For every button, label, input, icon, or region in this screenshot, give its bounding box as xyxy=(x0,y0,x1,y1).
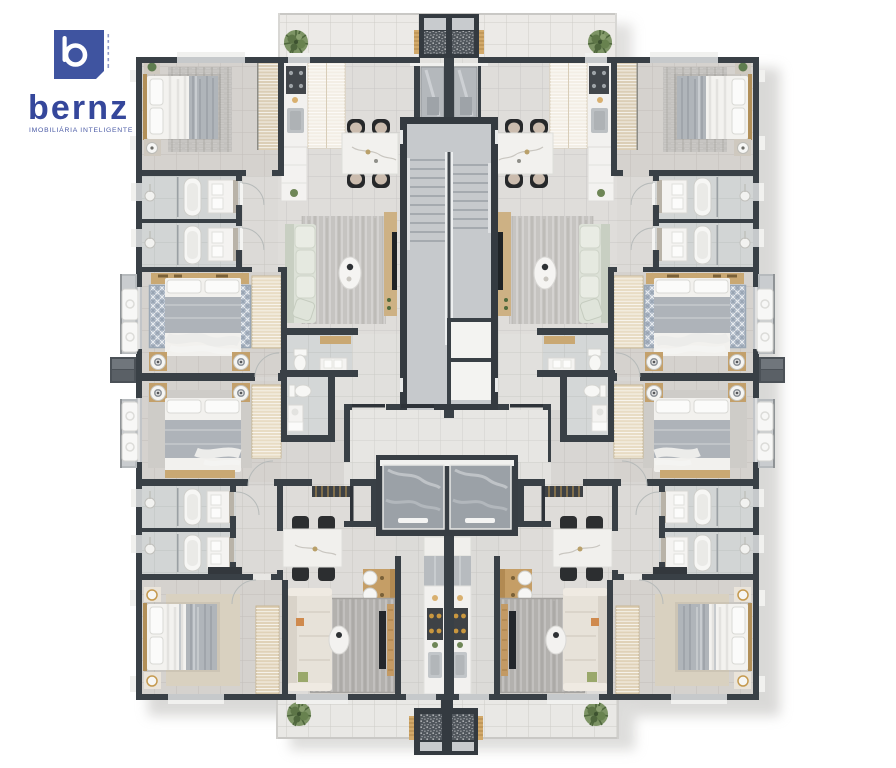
svg-text:bernz: bernz xyxy=(28,89,129,127)
svg-text:IMOBILIÁRIA INTELIGENTE: IMOBILIÁRIA INTELIGENTE xyxy=(29,125,133,134)
